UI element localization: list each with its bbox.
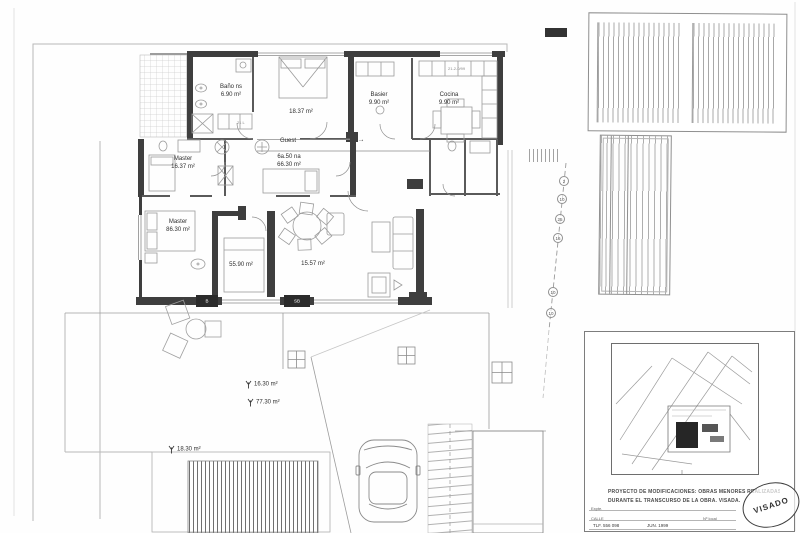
boundary-marker: 10 (546, 308, 556, 318)
room-name: Master (171, 156, 195, 164)
room-label-basier: Basier 9.90 m² (369, 92, 389, 108)
form-label-local: Nº local (703, 516, 717, 521)
room-label-5590: 55.90 m² (229, 262, 253, 268)
ramp-and-driveway (428, 424, 543, 533)
room-label-cocina: Cocina 9.90 m² (439, 92, 459, 108)
form-rule (589, 529, 736, 530)
room-name: Cocina (439, 92, 459, 100)
room-area: 66.30 m² (277, 162, 301, 170)
pier-tag: SB (294, 299, 300, 304)
area-value: 16.30 m² (254, 381, 278, 387)
terrace-area-label: 77.30 m² (247, 398, 280, 407)
siteplan-drawing (612, 344, 758, 474)
boundary-marker: 2 (559, 176, 569, 186)
room-label-guest-area: 6a.50 na 66.30 m² (277, 154, 301, 170)
room-name: Baño ns (220, 84, 242, 92)
room-label-bano: Baño ns 6.90 m² (220, 84, 242, 100)
room-area: 16.37 m² (171, 164, 195, 172)
room-name: Basier (369, 92, 389, 100)
rotated-text-column (692, 23, 778, 124)
scanned-floorplan-page: Baño ns 6.90 m² 18.37 m² Basier 9.90 m² … (0, 0, 800, 533)
room-area: 86.30 m² (166, 227, 190, 235)
terrace-area-label: 16.30 m² (245, 380, 278, 389)
room-area: 6.90 m² (220, 92, 242, 100)
area-value: 77.30 m² (256, 399, 280, 405)
room-area: 9.90 m² (369, 100, 389, 108)
form-label-tlf: TLF. 556 098 (593, 523, 619, 528)
plant-icon (168, 445, 175, 454)
rotated-text-column (597, 22, 683, 123)
visado-stamp: VISADO (737, 475, 800, 533)
room-label-1557: 15.57 m² (301, 261, 325, 267)
plant-icon (247, 398, 254, 407)
kitchen-note: 21-2-0/99 (448, 66, 465, 71)
walls-interior (142, 57, 500, 196)
room-label-master-16: Master 16.37 m² (171, 156, 195, 172)
outdoor-furniture (163, 300, 512, 383)
closet-note: 21 L (237, 120, 245, 125)
boundary-marker: 16 (553, 233, 563, 243)
boundary-marker: 25 (555, 214, 565, 224)
room-label-guest: Guest (280, 138, 296, 144)
room-name: Master (166, 219, 190, 227)
form-label-expte: Expte. (591, 506, 602, 511)
siteplan-inset (611, 343, 759, 475)
siteplan-building (668, 406, 730, 474)
boundary-marker: 10 (557, 194, 567, 204)
pool-area-label: 18.30 m² (168, 445, 201, 454)
tiled-terrace-hatch (140, 55, 187, 137)
room-area: 9.90 m² (439, 100, 459, 108)
form-label-date: JUN. 1999 (647, 523, 668, 528)
titleblock-sheet: PROYECTO DE MODIFICACIONES: OBRAS MENORE… (584, 331, 795, 532)
room-label-bedroom: 18.37 m² (289, 109, 313, 115)
boundary-marker: 10 (548, 287, 558, 297)
direction-arrow: → (358, 137, 365, 144)
area-value: 18.30 m² (177, 446, 201, 452)
form-rule (589, 510, 736, 511)
walls-exterior (136, 28, 567, 305)
pier-tag: B (205, 299, 208, 304)
room-name: 6a.50 na (277, 154, 301, 162)
room-label-master-86: Master 86.30 m² (166, 219, 190, 235)
spec-notes-block (588, 12, 788, 132)
spec-table-block (598, 135, 672, 296)
hatch-strip (527, 149, 559, 162)
pool-area (152, 452, 330, 533)
car-top-view (356, 440, 420, 522)
plant-icon (245, 380, 252, 389)
form-label-calle: CALLE (591, 516, 604, 521)
